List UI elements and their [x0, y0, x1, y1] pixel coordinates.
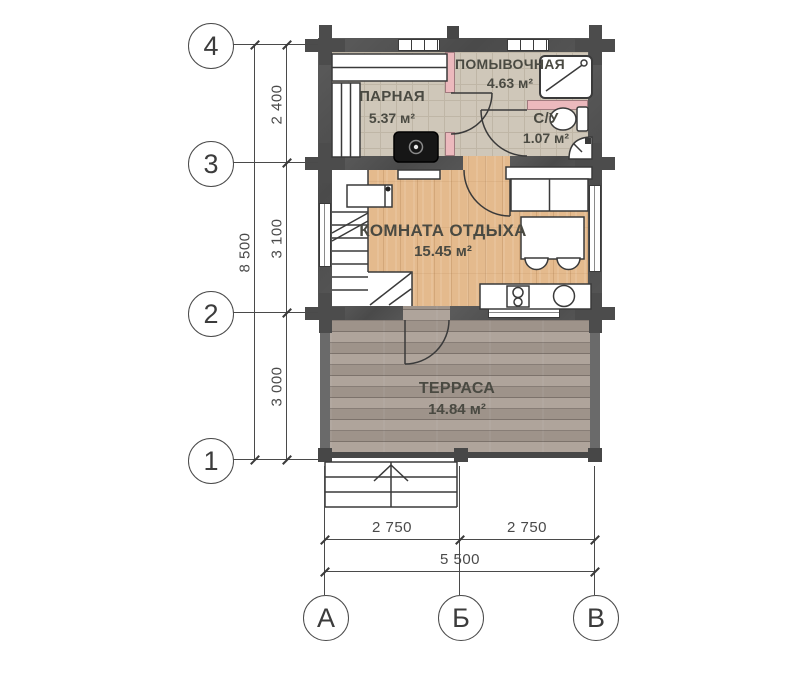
- up-arrow-icon: [374, 465, 408, 481]
- axis-label: 3: [203, 149, 218, 180]
- room-area: 4.63 м²: [448, 75, 572, 93]
- log-joint-a4: [303, 23, 347, 67]
- room-name: КОМНАТА ОТДЫХА: [358, 220, 528, 241]
- room-name: ТЕРРАСА: [392, 379, 522, 399]
- dim-2750-right: 2 750: [492, 519, 562, 536]
- partition-sauna-lower: [445, 132, 455, 156]
- dim-3000: 3 000: [269, 357, 286, 417]
- dim-8500: 8 500: [237, 223, 254, 283]
- entry-steps: [325, 462, 457, 507]
- room-area: 15.45 м²: [358, 243, 528, 262]
- dimline-h-total: [325, 571, 595, 572]
- axis-circle-a: А: [303, 595, 349, 641]
- room-name: ПАРНАЯ: [332, 88, 452, 107]
- partition-wc-top: [527, 100, 588, 110]
- dim-tick: [282, 40, 292, 50]
- window-left: [319, 203, 331, 267]
- room-label-parnaya: ПАРНАЯ 5.37 м²: [332, 88, 452, 127]
- room-label-pomyvochnaya: ПОМЫВОЧНАЯ 4.63 м²: [448, 56, 572, 92]
- dim-tick: [320, 567, 330, 577]
- dim-tick: [282, 455, 292, 465]
- room-label-su: С/У 1.07 м²: [508, 110, 584, 147]
- log-joint-a2: [303, 291, 347, 335]
- leader-axis1: [232, 459, 318, 460]
- room-label-terrasa: ТЕРРАСА 14.84 м²: [392, 379, 522, 420]
- dim-tick: [282, 158, 292, 168]
- terrace-wall-right: [590, 320, 600, 457]
- log-joint-v4: [573, 23, 617, 67]
- terrace-post-right: [588, 448, 602, 462]
- terrace-post-left: [318, 448, 332, 462]
- room-area: 1.07 м²: [508, 130, 584, 148]
- room-area: 5.37 м²: [332, 110, 452, 128]
- leader-axis2: [232, 312, 318, 313]
- log-joint-v3: [573, 141, 617, 185]
- wall-top: [318, 38, 602, 52]
- room-label-komnata-otdykha: КОМНАТА ОТДЫХА 15.45 м²: [358, 220, 528, 262]
- axis-label: 4: [203, 31, 218, 62]
- dim-5500: 5 500: [425, 551, 495, 568]
- leader-axis3: [232, 162, 318, 163]
- dimline-v-segments: [286, 45, 287, 460]
- axis-label: В: [587, 603, 605, 634]
- axis-label: Б: [452, 603, 470, 634]
- ext-axis-b: [459, 466, 460, 595]
- axis-label: 2: [203, 299, 218, 330]
- dim-tick: [282, 308, 292, 318]
- dim-tick: [455, 535, 465, 545]
- dim-tick: [320, 535, 330, 545]
- axis-label: А: [317, 603, 335, 634]
- window-top-1: [398, 39, 440, 51]
- axis-label: 1: [203, 446, 218, 477]
- dim-tick: [590, 535, 600, 545]
- wall-axis3-left: [332, 156, 463, 170]
- floor-plan: ПАРНАЯ 5.37 м² ПОМЫВОЧНАЯ 4.63 м² С/У 1.…: [0, 0, 806, 685]
- axis-circle-1: 1: [188, 438, 234, 484]
- leader-axis4: [232, 44, 318, 45]
- axis-circle-2: 2: [188, 291, 234, 337]
- dim-2750-left: 2 750: [357, 519, 427, 536]
- room-area: 14.84 м²: [392, 401, 522, 420]
- dim-tick: [590, 567, 600, 577]
- dim-2400: 2 400: [269, 75, 286, 135]
- axis-circle-4: 4: [188, 23, 234, 69]
- axis-circle-v: В: [573, 595, 619, 641]
- room-name: С/У: [508, 110, 584, 129]
- terrace-post-mid: [454, 448, 468, 462]
- window-right: [589, 185, 601, 272]
- ext-axis-v: [594, 466, 595, 595]
- log-joint-v2: [573, 291, 617, 335]
- dim-tick: [250, 40, 260, 50]
- window-top-2: [507, 39, 549, 51]
- terrace-wall-left: [320, 320, 330, 457]
- axis-circle-3: 3: [188, 141, 234, 187]
- dim-tick: [250, 455, 260, 465]
- dim-3100: 3 100: [269, 209, 286, 269]
- window-kitchen: [488, 308, 560, 318]
- dimline-v-total: [254, 45, 255, 460]
- axis-circle-b: Б: [438, 595, 484, 641]
- ext-axis-a: [324, 466, 325, 595]
- log-stub-top: [447, 26, 459, 39]
- room-name: ПОМЫВОЧНАЯ: [448, 56, 572, 74]
- log-joint-a3: [303, 141, 347, 185]
